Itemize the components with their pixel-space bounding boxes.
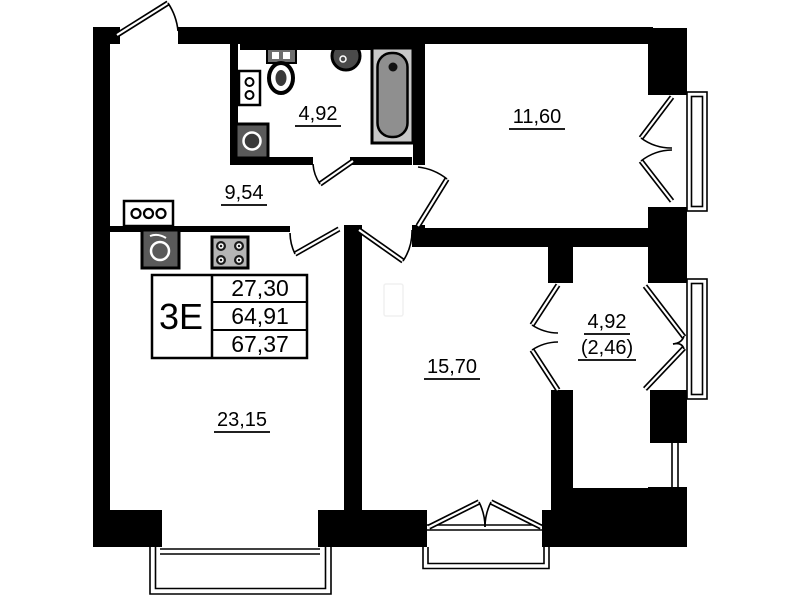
bedroom-door (418, 167, 447, 226)
bathtub-icon (372, 48, 413, 143)
living-room-door (359, 230, 412, 261)
bathroom-area-label: 4,92 (299, 103, 338, 125)
living-room-window (423, 502, 549, 569)
stove-icon (212, 237, 248, 268)
watermark (384, 284, 403, 316)
balcony-right-window (645, 279, 707, 487)
wall-segment (350, 157, 412, 165)
toilet-icon (267, 49, 296, 93)
living-room-area-label: 15,70 (427, 356, 477, 378)
balcony-left-window (532, 285, 558, 390)
balcony-reduced-area-label: (2,46) (581, 337, 633, 359)
kitchen-living-area-label: 23,15 (217, 409, 267, 431)
table-row-area-1: 27,30 (231, 275, 289, 301)
entrance-door (117, 3, 178, 35)
kitchen-door (290, 229, 339, 254)
wall-segment (93, 27, 110, 547)
unit-type-label: 3Е (159, 296, 203, 337)
wall-segment (548, 247, 573, 283)
floor-plan: 9,54 4,92 11,60 23,15 15,70 4,92 (2,46) … (0, 0, 799, 600)
wall-segment (93, 510, 162, 547)
kitchen-sink-icon (142, 230, 179, 268)
table-row-area-3: 67,37 (231, 331, 289, 357)
wall-segment (650, 390, 687, 443)
wall-segment (318, 510, 427, 547)
wall-segment (648, 28, 687, 95)
hallway-area-label: 9,54 (225, 182, 264, 204)
table-row-area-2: 64,91 (231, 303, 289, 329)
wall-segment (178, 27, 653, 44)
wall-segment (344, 225, 362, 510)
bathroom-door (313, 161, 353, 184)
wall-segment (542, 510, 687, 547)
wall-segment (573, 488, 650, 510)
bedroom-area-label: 11,60 (513, 106, 562, 128)
wall-segment (93, 27, 120, 44)
wall-segment (551, 390, 573, 510)
balcony-area-label: 4,92 (588, 311, 627, 333)
info-table: 3Е 27,30 64,91 67,37 (152, 275, 307, 358)
wall-segment (412, 228, 660, 247)
bedroom-window (641, 92, 707, 211)
appliance-three-knob-icon (124, 201, 173, 226)
washbasin-icon (236, 124, 268, 158)
appliance-two-knob-icon (239, 71, 260, 105)
kitchen-bay-window (150, 547, 331, 594)
wall-segment (413, 44, 425, 165)
